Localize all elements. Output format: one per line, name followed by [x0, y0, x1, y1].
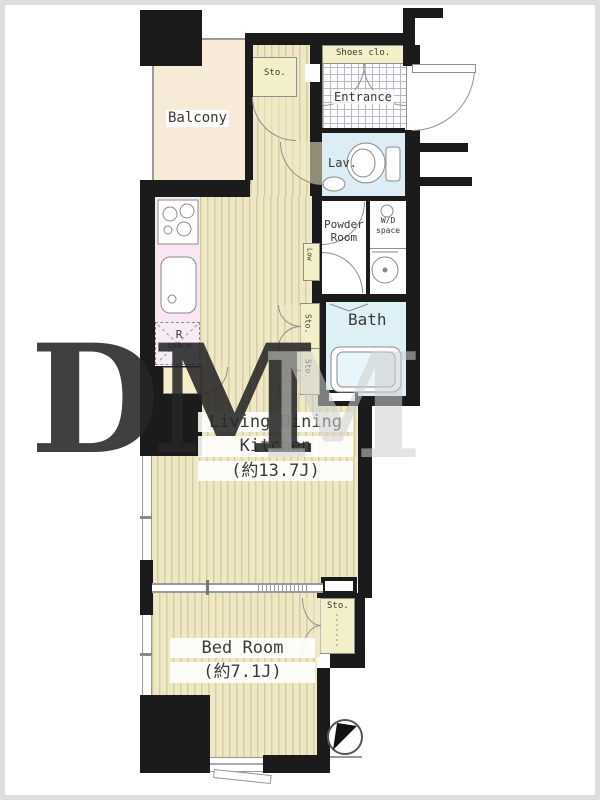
washbasin-icon: [372, 252, 398, 283]
bedroom-storage-label: Sto.: [325, 601, 351, 612]
low-counter-label: Low: [305, 246, 313, 263]
powder-room-label: Powder Room: [322, 218, 366, 244]
ldk-label-line1: Living Dining: [198, 412, 353, 432]
powder-room-label-line1: Powder: [324, 218, 364, 231]
mid-storage-lower-label: Sto.: [303, 357, 313, 380]
floor-plan-canvas: Balcony Shoes clo. Entrance Lav. W/D spa…: [0, 0, 600, 800]
powder-room-label-line2: Room: [324, 231, 364, 244]
wd-space-label-line2: space: [376, 226, 400, 236]
rspace-label-line1: R: [164, 328, 194, 341]
kitchen-sink-icon: [161, 257, 196, 313]
bathtub-icon: [331, 347, 401, 392]
rspace-label-line2: space: [164, 341, 194, 351]
mid-storage-upper-label: Sto.: [303, 312, 313, 335]
hall-storage-label: Sto.: [262, 68, 288, 79]
north-compass-icon: [328, 720, 362, 754]
entrance-label: Entrance: [332, 90, 394, 104]
bath-label: Bath: [346, 310, 389, 329]
ldk-label-line2: Kitchen: [198, 436, 353, 456]
refrigerator-space-label: R space: [162, 328, 196, 351]
ldk-area-label: (約13.7J): [198, 461, 353, 481]
bedroom-area-label: (約7.1J): [170, 662, 315, 682]
bedroom-label: Bed Room (約7.1J): [168, 638, 317, 683]
lavatory-label: Lav.: [326, 156, 359, 170]
shoes-closet-label: Shoes clo.: [334, 48, 392, 59]
wd-space-label-line1: W/D: [376, 216, 400, 226]
balcony-label: Balcony: [166, 110, 229, 127]
bedroom-label-line1: Bed Room: [170, 638, 315, 658]
ldk-label: Living Dining Kitchen (約13.7J): [196, 412, 355, 481]
stove-icon: [158, 200, 198, 244]
lav-sink-icon: [323, 177, 345, 191]
wd-space-label: W/D space: [374, 216, 402, 235]
